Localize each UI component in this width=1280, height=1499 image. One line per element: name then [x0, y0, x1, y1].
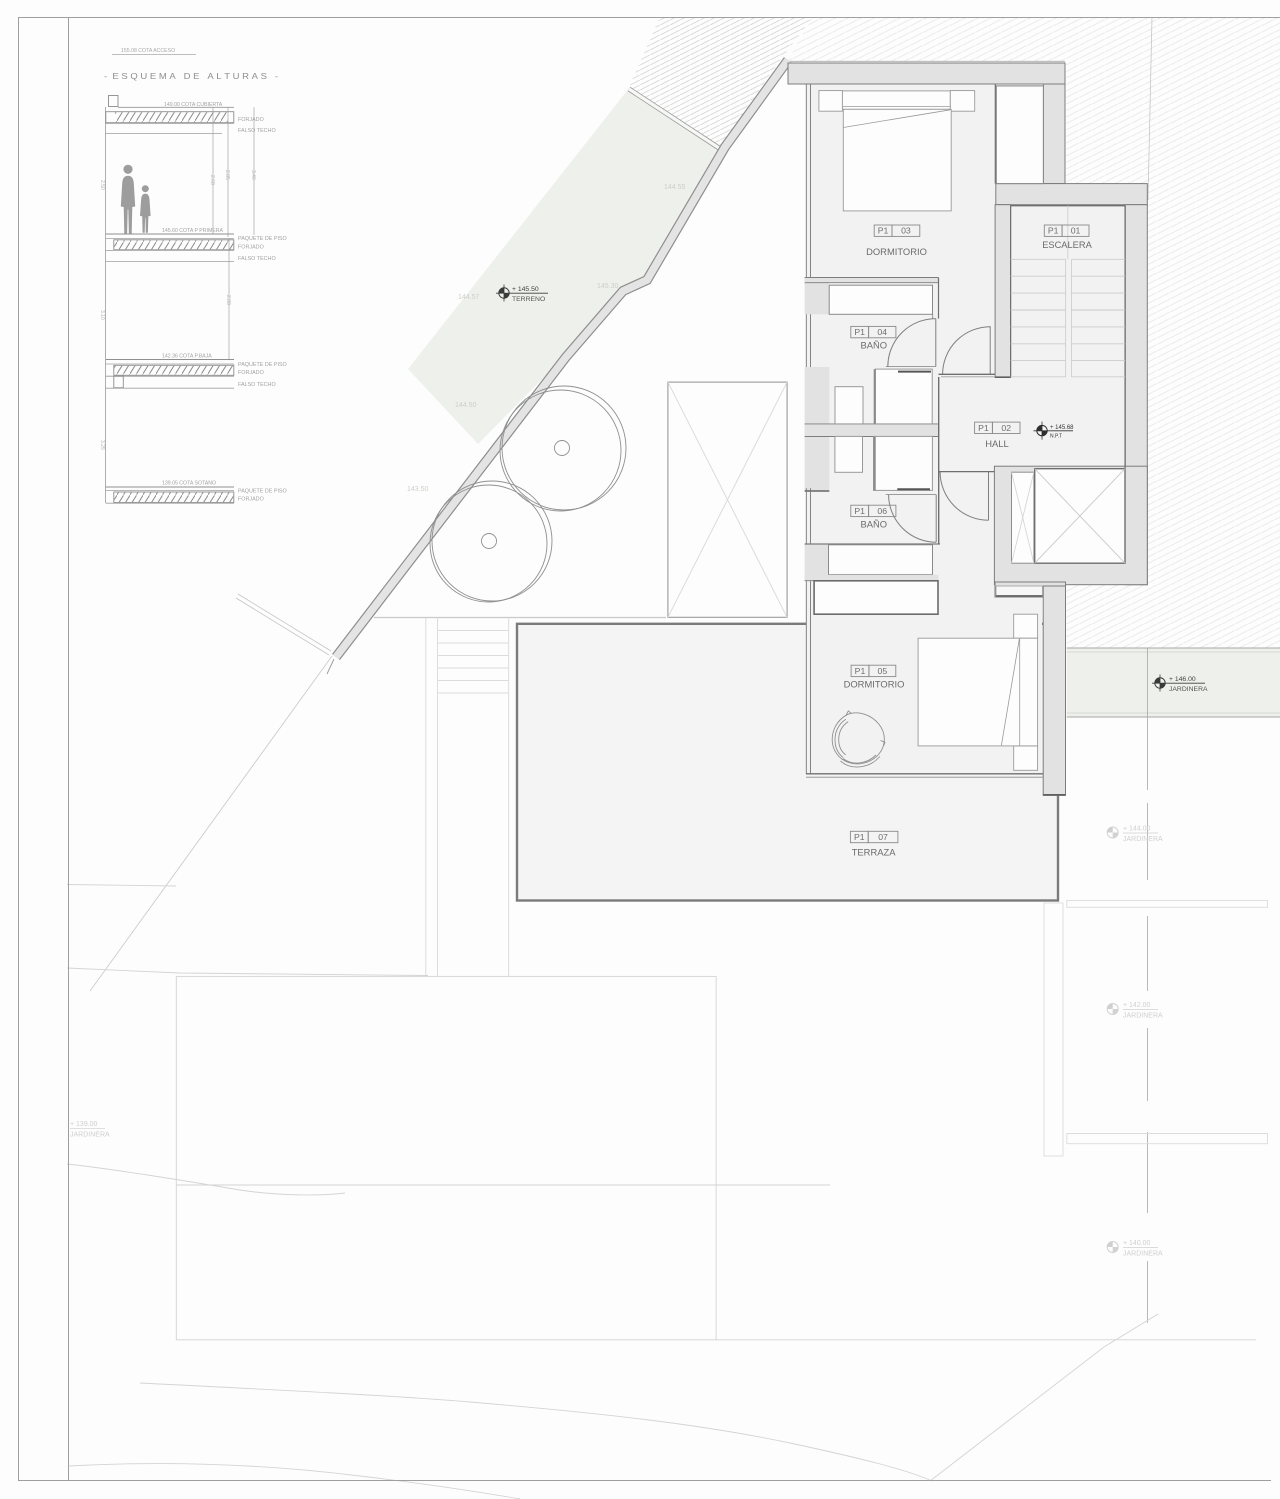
svg-text:+ 139.00: + 139.00	[70, 1121, 98, 1128]
svg-text:3.40: 3.40	[250, 170, 256, 180]
svg-text:2.50: 2.50	[99, 180, 105, 190]
svg-text:145.60 COTA P PRIMERA: 145.60 COTA P PRIMERA	[162, 228, 223, 234]
svg-text:+ 145.68: + 145.68	[1050, 425, 1074, 431]
svg-text:ESCALERA: ESCALERA	[1042, 240, 1092, 250]
svg-text:FALSO TECHO: FALSO TECHO	[238, 256, 276, 262]
svg-text:+ 146.00: + 146.00	[1169, 676, 1196, 683]
svg-text:DORMITORIO: DORMITORIO	[866, 246, 927, 257]
svg-text:01: 01	[1071, 226, 1081, 236]
svg-text:FORJADO: FORJADO	[238, 370, 264, 376]
svg-text:P1: P1	[854, 832, 865, 842]
svg-text:144.50: 144.50	[455, 402, 477, 409]
svg-text:PAQUETE DE PISO: PAQUETE DE PISO	[238, 236, 287, 242]
svg-text:142.36 COTA P.BAJA: 142.36 COTA P.BAJA	[162, 354, 212, 360]
svg-text:P1: P1	[978, 423, 989, 433]
svg-text:P1: P1	[854, 506, 865, 516]
svg-text:PAQUETE DE PISO: PAQUETE DE PISO	[238, 362, 287, 368]
svg-text:2.88: 2.88	[225, 295, 231, 305]
svg-text:BAÑO: BAÑO	[861, 518, 888, 529]
svg-text:FORJADO: FORJADO	[238, 497, 264, 503]
svg-text:3.25: 3.25	[99, 440, 105, 450]
svg-text:TERRENO: TERRENO	[512, 296, 545, 303]
svg-text:FORJADO: FORJADO	[238, 117, 264, 123]
svg-text:JARDINERA: JARDINERA	[1123, 1251, 1163, 1258]
svg-text:DORMITORIO: DORMITORIO	[844, 679, 905, 690]
svg-text:03: 03	[901, 226, 911, 236]
svg-text:JARDINERA: JARDINERA	[1169, 686, 1208, 693]
svg-text:05: 05	[878, 666, 888, 676]
svg-text:JARDINERA: JARDINERA	[70, 1132, 110, 1139]
svg-text:TERRAZA: TERRAZA	[852, 847, 897, 858]
svg-text:02: 02	[1001, 423, 1011, 433]
svg-text:FALSO TECHO: FALSO TECHO	[238, 382, 276, 388]
svg-text:145.30: 145.30	[597, 283, 619, 290]
svg-text:P1: P1	[1048, 226, 1059, 236]
svg-text:2.68: 2.68	[209, 175, 215, 185]
svg-text:04: 04	[877, 327, 887, 337]
svg-text:BAÑO: BAÑO	[861, 340, 888, 351]
svg-text:144.55: 144.55	[664, 184, 686, 191]
svg-text:2.85: 2.85	[224, 170, 230, 180]
svg-text:FORJADO: FORJADO	[238, 245, 264, 251]
svg-text:PAQUETE DE PISO: PAQUETE DE PISO	[238, 489, 287, 495]
svg-text:3.10: 3.10	[99, 310, 105, 320]
svg-text:+ 144.00: + 144.00	[1123, 826, 1151, 833]
svg-text:P1: P1	[855, 666, 866, 676]
svg-text:- E S Q U E M A D E A L T: - E S Q U E M A D E A L T U R A S -	[104, 72, 278, 81]
svg-text:+ 145.50: + 145.50	[512, 286, 539, 293]
svg-text:139.05 COTA SOTANO: 139.05 COTA SOTANO	[162, 481, 216, 487]
svg-text:HALL: HALL	[985, 438, 1008, 449]
svg-text:+ 142.00: + 142.00	[1123, 1002, 1151, 1009]
svg-text:N.P.T: N.P.T	[1050, 434, 1062, 440]
svg-text:P1: P1	[854, 327, 865, 337]
svg-text:143.50: 143.50	[407, 486, 429, 493]
svg-text:155.08 COTA ACCESO: 155.08 COTA ACCESO	[121, 48, 175, 54]
svg-text:P1: P1	[878, 226, 889, 236]
svg-text:JARDINERA: JARDINERA	[1123, 836, 1163, 843]
svg-text:144.57: 144.57	[458, 294, 480, 301]
svg-text:JARDINERA: JARDINERA	[1123, 1013, 1163, 1020]
svg-text:+ 140.00: + 140.00	[1123, 1240, 1151, 1247]
svg-text:06: 06	[877, 506, 887, 516]
svg-text:07: 07	[878, 832, 888, 842]
svg-text:FALSO TECHO: FALSO TECHO	[238, 128, 276, 134]
